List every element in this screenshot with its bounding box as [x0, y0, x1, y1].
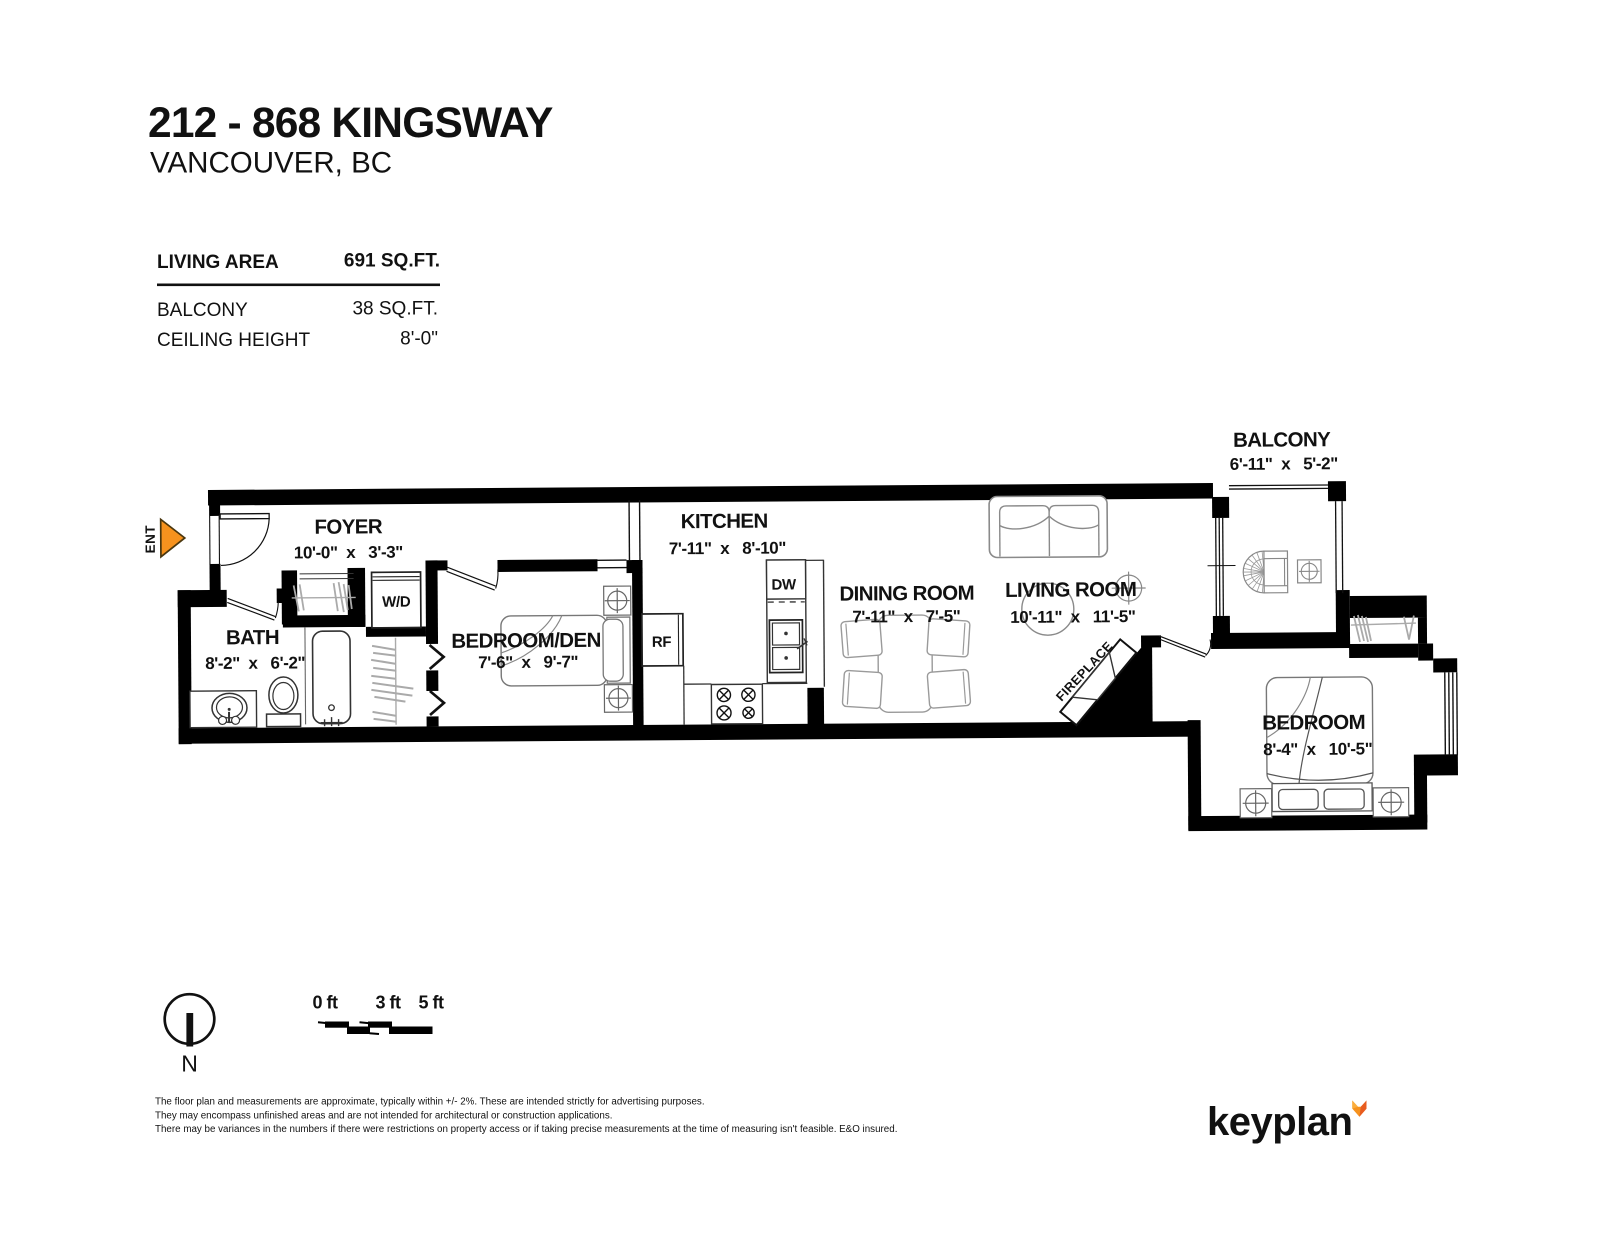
svg-text:KITCHEN: KITCHEN	[681, 510, 768, 534]
svg-text:DINING ROOM: DINING ROOM	[839, 582, 974, 606]
svg-text:7'-11" x 8'-10": 7'-11" x 8'-10"	[669, 538, 786, 558]
svg-text:0 ft: 0 ft	[313, 993, 339, 1013]
svg-text:LIVING ROOM: LIVING ROOM	[1005, 578, 1136, 602]
svg-text:The floor plan and measurement: The floor plan and measurements are appr…	[155, 1097, 705, 1108]
svg-text:BATH: BATH	[226, 626, 279, 649]
svg-text:BEDROOM: BEDROOM	[1262, 711, 1365, 735]
svg-text:FOYER: FOYER	[314, 515, 383, 538]
svg-text:3 ft: 3 ft	[376, 993, 402, 1013]
svg-text:RF: RF	[652, 634, 672, 651]
svg-text:8'-4" x 10'-5": 8'-4" x 10'-5"	[1263, 739, 1372, 759]
svg-text:8'-2" x 6'-2": 8'-2" x 6'-2"	[205, 653, 305, 673]
svg-text:BEDROOM/DEN: BEDROOM/DEN	[451, 629, 601, 653]
svg-text:10'-0" x 3'-3": 10'-0" x 3'-3"	[294, 543, 403, 563]
svg-text:691 SQ.FT.: 691 SQ.FT.	[344, 251, 440, 272]
svg-text:VANCOUVER, BC: VANCOUVER, BC	[150, 147, 392, 180]
svg-text:10'-11" x 11'-5": 10'-11" x 11'-5"	[1010, 607, 1135, 627]
svg-text:6'-11" x 5'-2": 6'-11" x 5'-2"	[1230, 454, 1338, 474]
svg-text:LIVING AREA: LIVING AREA	[157, 252, 279, 273]
svg-text:5 ft: 5 ft	[419, 993, 445, 1013]
svg-text:7'-6" x 9'-7": 7'-6" x 9'-7"	[478, 652, 578, 672]
svg-text:keyplan: keyplan	[1207, 1100, 1352, 1144]
svg-text:8'-0": 8'-0"	[400, 329, 438, 350]
svg-text:N: N	[181, 1051, 198, 1077]
svg-text:38 SQ.FT.: 38 SQ.FT.	[352, 299, 438, 320]
svg-text:CEILING HEIGHT: CEILING HEIGHT	[157, 330, 310, 351]
svg-text:BALCONY: BALCONY	[1233, 428, 1331, 452]
svg-text:They may encompass unfinished: They may encompass unfinished areas and …	[155, 1110, 612, 1121]
svg-text:W/D: W/D	[382, 594, 411, 611]
svg-text:212 - 868 KINGSWAY: 212 - 868 KINGSWAY	[148, 100, 553, 147]
svg-text:There may be variances in the: There may be variances in the numbers if…	[155, 1124, 897, 1135]
svg-text:BALCONY: BALCONY	[157, 300, 248, 321]
svg-text:DW: DW	[771, 576, 797, 593]
svg-text:7'-11" x 7'-5": 7'-11" x 7'-5"	[852, 607, 960, 627]
svg-text:ENT: ENT	[143, 525, 158, 554]
